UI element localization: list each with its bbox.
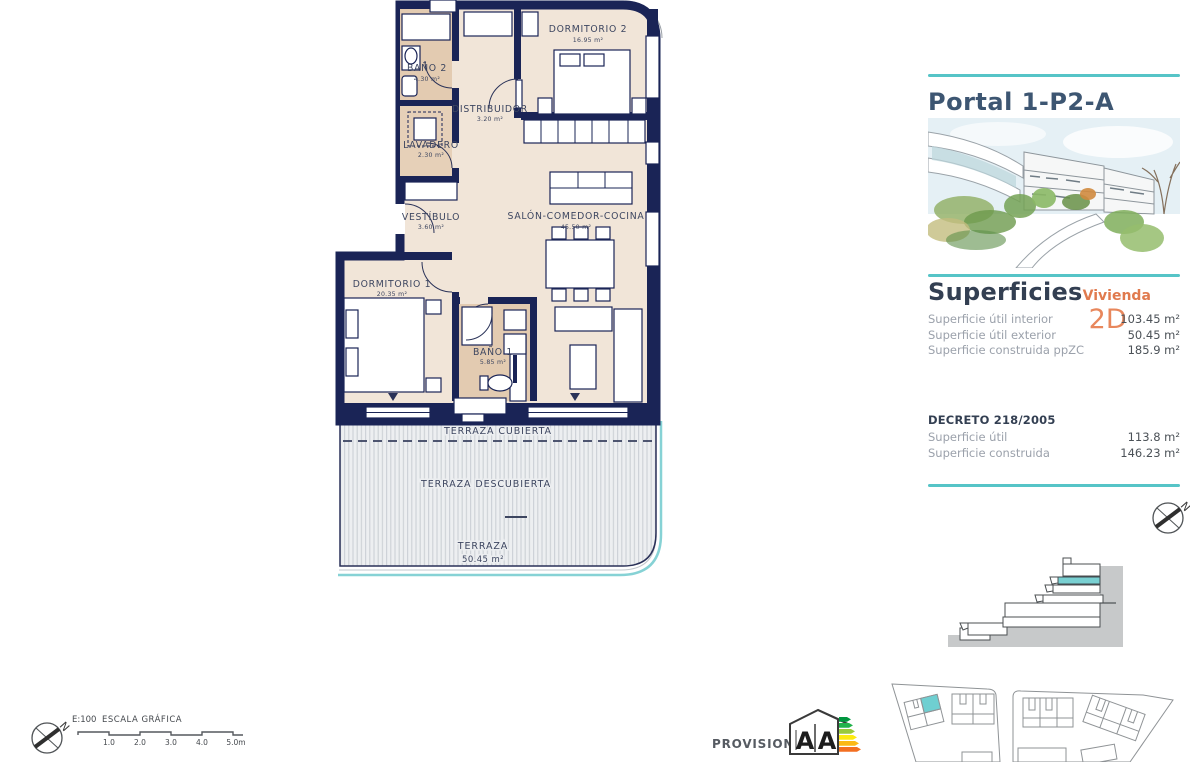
- room-area: 3.20 m²: [477, 116, 504, 123]
- table-row: Superficie útil interior 103.45 m²: [928, 312, 1180, 328]
- dining-set: [546, 227, 614, 301]
- nightstand: [538, 98, 552, 114]
- superficies-heading: Superficies: [928, 278, 1083, 306]
- north-compass-icon: N: [1153, 499, 1190, 533]
- decreto-block: DECRETO 218/2005 Superficie útil 113.8 m…: [928, 412, 1180, 461]
- energy-letter-left: A: [796, 727, 815, 755]
- table-row: Superficie útil exterior 50.45 m²: [928, 328, 1180, 344]
- row-value: 185.9 m²: [1128, 343, 1180, 359]
- wall: [452, 297, 460, 304]
- teal-rule-top: [928, 74, 1180, 77]
- roof-vent: [430, 0, 456, 12]
- chair: [596, 289, 610, 301]
- terrace-area-label: 50.45 m²: [462, 555, 504, 565]
- room-area: 2.30 m²: [418, 152, 445, 159]
- energy-label-icon: A A: [782, 704, 862, 758]
- building-footprint: [1018, 748, 1066, 762]
- building-footprint: [962, 752, 992, 762]
- north-letter: N: [1178, 499, 1190, 514]
- armchair: [570, 345, 596, 389]
- bathtub: [402, 14, 450, 40]
- window: [646, 36, 659, 98]
- vivienda-label: Vivienda: [1083, 288, 1151, 304]
- row-value: 146.23 m²: [1120, 446, 1180, 462]
- wall: [396, 252, 452, 260]
- room-label: BAÑO 2: [407, 63, 447, 74]
- floor-plan: TERRAZA CUBIERTA TERRAZA DESCUBIERTA TER…: [330, 0, 666, 584]
- bench: [454, 398, 506, 414]
- room-label: DORMITORIO 2: [549, 24, 628, 35]
- room-label: DORMITORIO 1: [353, 279, 432, 290]
- terrace-name-label: TERRAZA: [457, 541, 508, 552]
- plan-sheet: { "panel": { "title": "Portal 1-P2-A", "…: [0, 0, 1200, 762]
- nightstand: [426, 378, 441, 392]
- room-area: 5.85 m²: [480, 359, 507, 366]
- room-area: 3.60 m²: [418, 224, 445, 231]
- shower: [462, 307, 492, 345]
- wall: [396, 100, 458, 106]
- vestibule-closet: [405, 182, 457, 200]
- table-row: Superficie construida 146.23 m²: [928, 446, 1180, 462]
- table-row: Superficie útil 113.8 m²: [928, 430, 1180, 446]
- superficies-rows: Superficie útil interior 103.45 m² Super…: [928, 312, 1180, 359]
- chair: [574, 289, 588, 301]
- tv: [513, 355, 517, 383]
- chair: [596, 227, 610, 239]
- scale-tick: 4.0: [196, 738, 208, 747]
- teal-rule-bottom: [928, 484, 1180, 487]
- room-label: BAÑO 1: [473, 347, 513, 358]
- wall: [452, 9, 459, 61]
- room-area: 4.30 m²: [414, 76, 441, 83]
- terrace-uncovered-label: TERRAZA DESCUBIERTA: [420, 479, 551, 490]
- north-compass-icon: N: [32, 719, 72, 753]
- room-area: 20.35 m²: [377, 291, 408, 298]
- page-title: Portal 1-P2-A: [928, 88, 1114, 116]
- apartment: DORMITORIO 2 16.95 m² BAÑO 2 4.30 m² DIS…: [340, 0, 662, 422]
- pillow: [584, 54, 604, 66]
- pillow: [346, 348, 358, 376]
- pillow: [560, 54, 580, 66]
- row-value: 103.45 m²: [1120, 312, 1180, 328]
- row-value: 50.45 m²: [1128, 328, 1180, 344]
- building-footprint: [1083, 695, 1145, 740]
- row-value: 113.8 m²: [1128, 430, 1180, 446]
- building-footprint: [952, 694, 994, 724]
- building-footprint: [904, 694, 944, 729]
- table-row: Superficie construida ppZC 185.9 m²: [928, 343, 1180, 359]
- walkway: [1016, 214, 1104, 268]
- washer: [414, 118, 436, 140]
- building-section: [948, 558, 1123, 647]
- sink: [504, 310, 526, 330]
- row-label: Superficie construida ppZC: [928, 343, 1084, 359]
- nightstand: [632, 98, 646, 114]
- decreto-heading: DECRETO 218/2005: [928, 412, 1180, 428]
- window: [646, 212, 659, 266]
- energy-letter-right: A: [818, 727, 837, 755]
- wall: [488, 297, 537, 304]
- terrace: TERRAZA CUBIERTA TERRAZA DESCUBIERTA TER…: [338, 421, 661, 575]
- room-label: DISTRIBUIDOR: [452, 104, 528, 115]
- closet: [464, 12, 512, 36]
- cistern: [480, 376, 488, 390]
- wall: [396, 176, 458, 182]
- kitchen-counter: [524, 120, 645, 143]
- section-diagram: N: [940, 495, 1190, 665]
- scale-bar: [78, 732, 243, 735]
- building-footprint: [1081, 744, 1117, 762]
- room-area: 45.50 m²: [561, 224, 592, 231]
- sink: [405, 48, 417, 64]
- scale-tick: 3.0: [165, 738, 177, 747]
- room-label: SALÓN-COMEDOR-COCINA: [508, 210, 645, 222]
- row-label: Superficie construida: [928, 446, 1050, 462]
- scale-label: ESCALA GRÁFICA: [102, 713, 182, 725]
- north-letter: N: [57, 719, 72, 734]
- room-label: LAVADERO: [403, 140, 459, 151]
- sofa-chaise: [614, 309, 642, 402]
- dining-table: [546, 240, 614, 288]
- row-label: Superficie útil: [928, 430, 1007, 446]
- scale-bar-group: N E:100 ESCALA GRÁFICA 1.0 2.0 3.0 4.0 5…: [20, 700, 270, 760]
- wall: [530, 297, 537, 401]
- room-label: VESTÍBULO: [402, 211, 460, 223]
- highlighted-floor: [1058, 577, 1100, 584]
- scale-tick: 5.0m: [226, 738, 245, 747]
- threshold: [462, 414, 484, 422]
- wall: [514, 9, 521, 79]
- watercolor-illustration: [928, 118, 1180, 268]
- pillow: [346, 310, 358, 338]
- building-footprint: [1023, 698, 1073, 727]
- chair: [552, 289, 566, 301]
- teal-rule-mid: [928, 274, 1180, 277]
- closet: [522, 12, 538, 36]
- site-plan: [882, 680, 1200, 762]
- terrace-covered-label: TERRAZA CUBIERTA: [443, 426, 552, 437]
- parcel-outline: [1013, 691, 1173, 762]
- wall: [452, 88, 459, 143]
- nightstand: [426, 300, 441, 314]
- toilet: [488, 375, 512, 391]
- scale-ratio: E:100: [72, 715, 96, 725]
- scale-tick: 1.0: [103, 738, 115, 747]
- row-label: Superficie útil exterior: [928, 328, 1056, 344]
- room-area: 16.95 m²: [573, 37, 604, 44]
- scale-tick: 2.0: [134, 738, 146, 747]
- window: [646, 142, 659, 164]
- site-parcels: [892, 684, 1173, 762]
- sofa: [555, 307, 612, 331]
- parcel-outline: [892, 684, 1000, 762]
- row-label: Superficie útil interior: [928, 312, 1053, 328]
- wall: [452, 292, 459, 401]
- bedroom2-furniture: [538, 50, 646, 114]
